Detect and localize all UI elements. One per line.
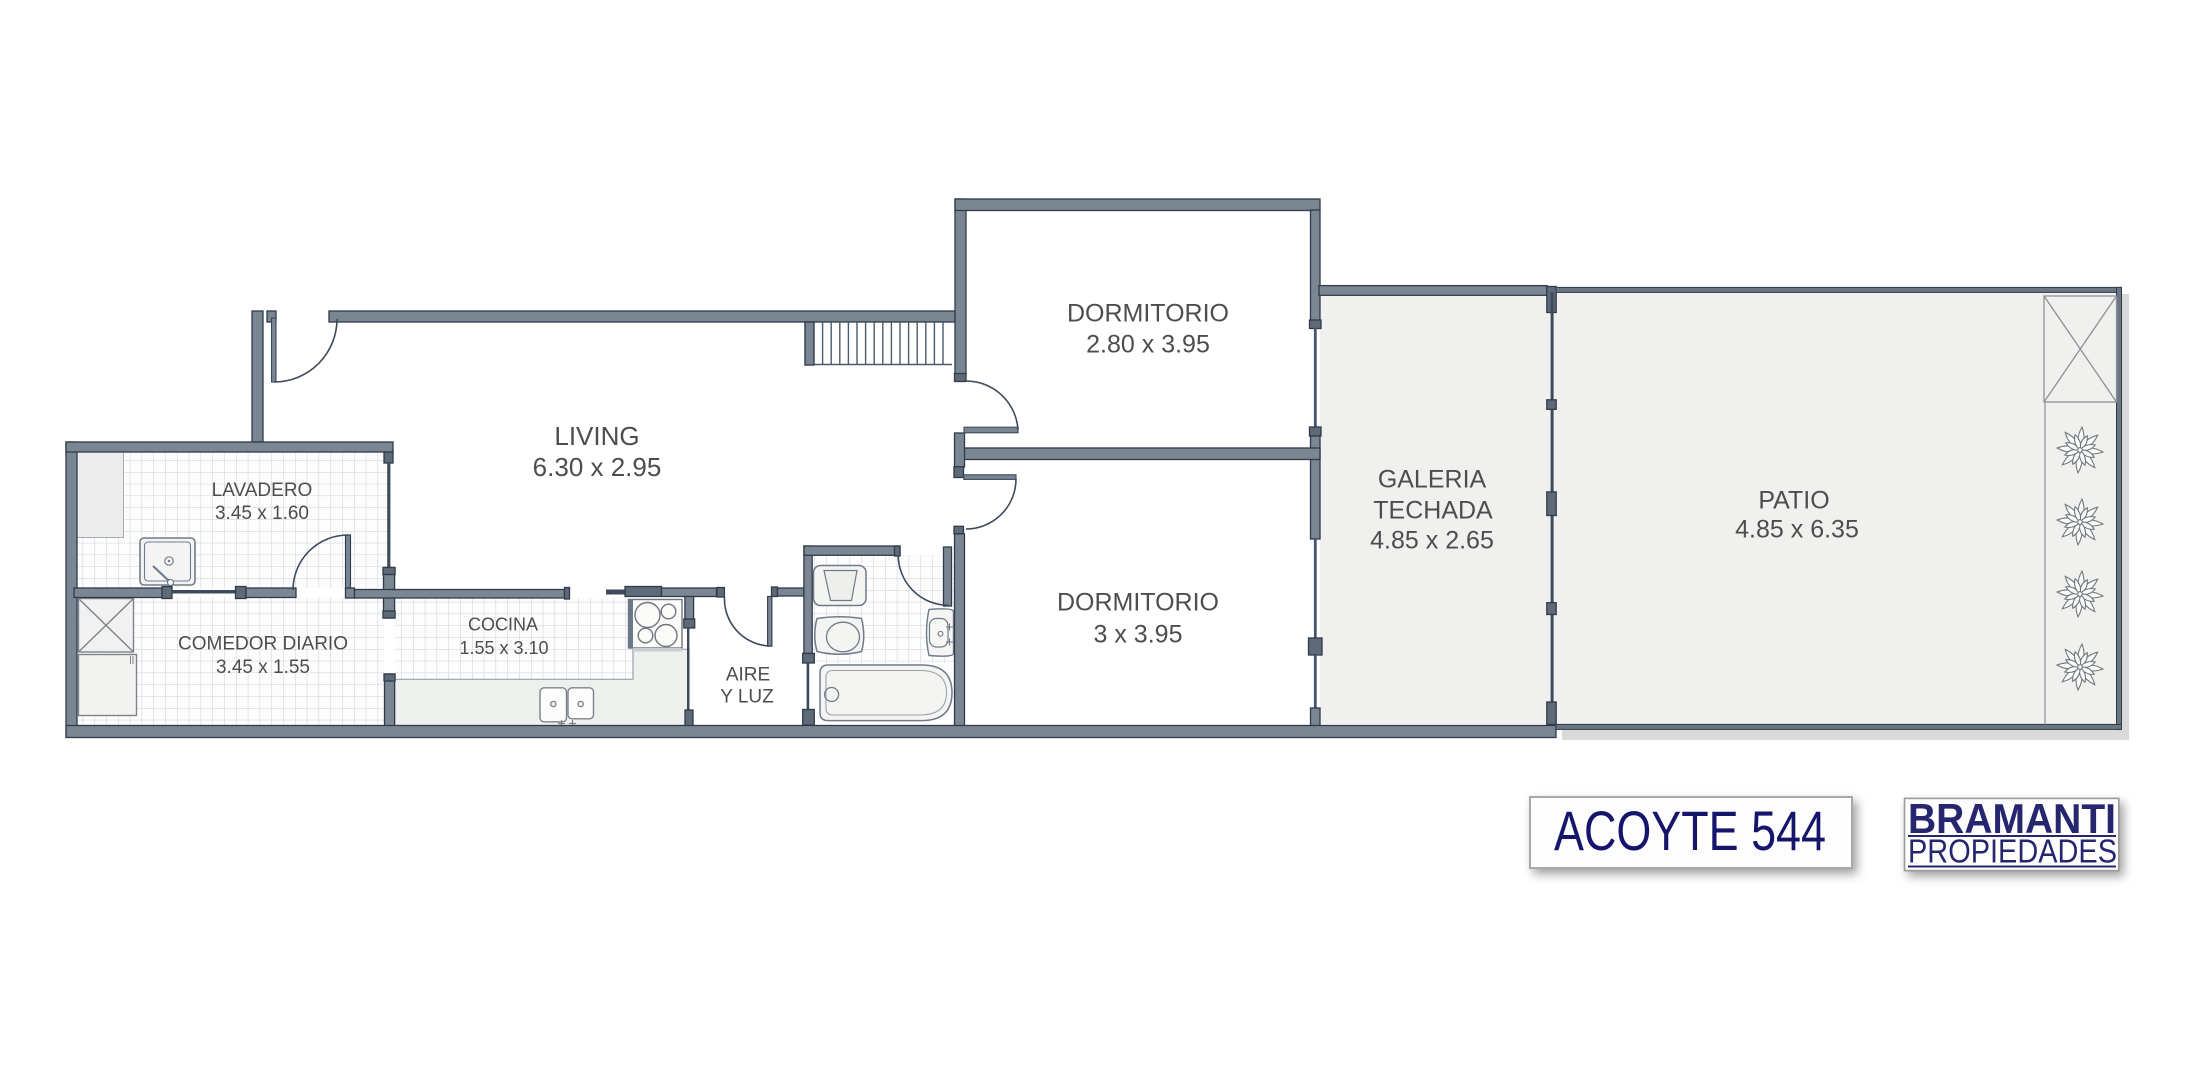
svg-text:TECHADA: TECHADA [1373, 497, 1493, 525]
svg-text:6.30 x 2.95: 6.30 x 2.95 [533, 452, 662, 482]
svg-text:GALERIA: GALERIA [1378, 466, 1487, 494]
svg-text:3.45 x 1.55: 3.45 x 1.55 [216, 657, 310, 678]
svg-text:1.55 x 3.10: 1.55 x 3.10 [459, 638, 548, 658]
svg-text:4.85 x 6.35: 4.85 x 6.35 [1735, 516, 1859, 544]
svg-text:DORMITORIO: DORMITORIO [1057, 589, 1219, 617]
svg-text:COMEDOR DIARIO: COMEDOR DIARIO [178, 634, 348, 655]
svg-text:AIRE: AIRE [726, 665, 770, 686]
svg-text:Y LUZ: Y LUZ [720, 687, 774, 708]
svg-text:PATIO: PATIO [1758, 487, 1829, 515]
svg-text:LAVADERO: LAVADERO [212, 480, 313, 501]
svg-text:DORMITORIO: DORMITORIO [1067, 300, 1229, 328]
svg-text:3 x 3.95: 3 x 3.95 [1094, 621, 1183, 649]
svg-text:3.45 x 1.60: 3.45 x 1.60 [215, 503, 309, 524]
svg-text:PROPIEDADES: PROPIEDADES [1908, 833, 2117, 870]
svg-text:4.85 x 2.65: 4.85 x 2.65 [1370, 527, 1494, 555]
svg-text:ACOYTE 544: ACOYTE 544 [1554, 799, 1826, 862]
svg-text:2.80 x 3.95: 2.80 x 3.95 [1086, 331, 1210, 359]
svg-text:LIVING: LIVING [554, 421, 639, 451]
svg-text:COCINA: COCINA [468, 615, 538, 635]
